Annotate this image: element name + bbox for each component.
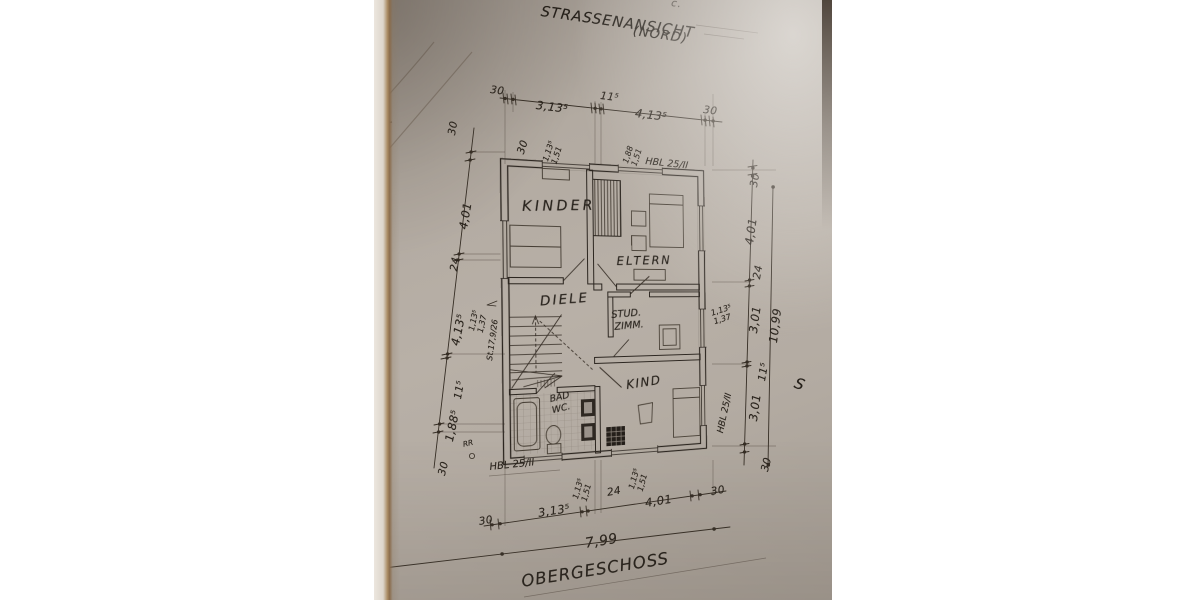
photo-edge-shadow	[822, 0, 832, 230]
dimension-label: 4,13⁵	[448, 312, 468, 346]
dimension-label: 11⁵	[600, 90, 620, 104]
window-size-note: 1,13⁵ 1,51	[572, 478, 594, 503]
plumbing-fixtures	[581, 397, 625, 448]
floor-plan-drawing: KINDER ELTERN DIELE STUD. ZIMM. KIND BAD…	[499, 158, 707, 467]
dimension-label: 4,13⁵	[634, 106, 668, 124]
dimension-label: 30	[436, 460, 451, 477]
blueprint-photo: KINDER ELTERN DIELE STUD. ZIMM. KIND BAD…	[374, 0, 832, 600]
staircase	[509, 314, 594, 389]
dimension-label: 30	[710, 484, 726, 498]
dimension-label: 30	[759, 456, 774, 473]
dimension-label: 11⁵	[452, 380, 467, 401]
dimension-label: 24	[751, 264, 765, 280]
dimension-label: 3,01	[746, 305, 764, 334]
dimension-label: 11⁵	[756, 362, 771, 383]
dimension-label: 4,01	[456, 201, 475, 230]
door-threshold	[535, 379, 556, 387]
room-label-stud-zimm-2: ZIMM.	[614, 319, 644, 332]
total-width-label: 7,99	[584, 531, 619, 552]
dimension-label: 3,01	[746, 393, 764, 422]
dimension-label: 30	[478, 514, 494, 528]
dimension-label: 24	[448, 256, 462, 272]
dimension-label: 1,88⁵	[442, 408, 462, 442]
room-label-kind: KIND	[625, 372, 662, 392]
dimension-label: 30	[515, 139, 531, 156]
paper-fold-edge	[374, 0, 400, 600]
dimension-label: 30	[748, 172, 762, 188]
room-label-diele: DIELE	[539, 291, 589, 310]
edge-letter: S	[792, 374, 808, 395]
dimension-label: 3,13⁵	[537, 501, 571, 520]
room-label-kinder: KINDER	[521, 198, 595, 215]
dimension-label: 4,01	[644, 492, 673, 510]
wall-material-label: HBL 25/II	[716, 392, 734, 434]
window-size-note: 1,13⁵ 1,51	[628, 468, 650, 493]
dimension-label: 30	[490, 84, 506, 98]
edge-mark: c.	[670, 0, 682, 10]
chimney-shaft	[593, 179, 621, 236]
window-size-note: 1,13⁵ 1,37	[710, 304, 735, 327]
dimension-label: 3,13⁵	[535, 98, 569, 116]
total-height-label: 10,99	[766, 307, 784, 343]
wall-material-label: HBL 25/II	[489, 457, 535, 473]
dimension-label: 30	[446, 120, 460, 136]
drawing-title-floor: OBERGESCHOSS	[520, 549, 670, 591]
dimension-label: 24	[606, 485, 622, 499]
dimension-label: 30	[703, 104, 719, 118]
room-label-eltern: ELTERN	[616, 253, 672, 268]
stair-ratio-note: St.17,9/26	[486, 319, 500, 361]
window-size-note: 1,13⁵ 1,37	[468, 309, 489, 333]
rain-pipe-label: RR	[462, 438, 474, 449]
window-size-note: 1,88 1,51	[622, 145, 644, 167]
dimension-label: 4,01	[742, 217, 760, 246]
